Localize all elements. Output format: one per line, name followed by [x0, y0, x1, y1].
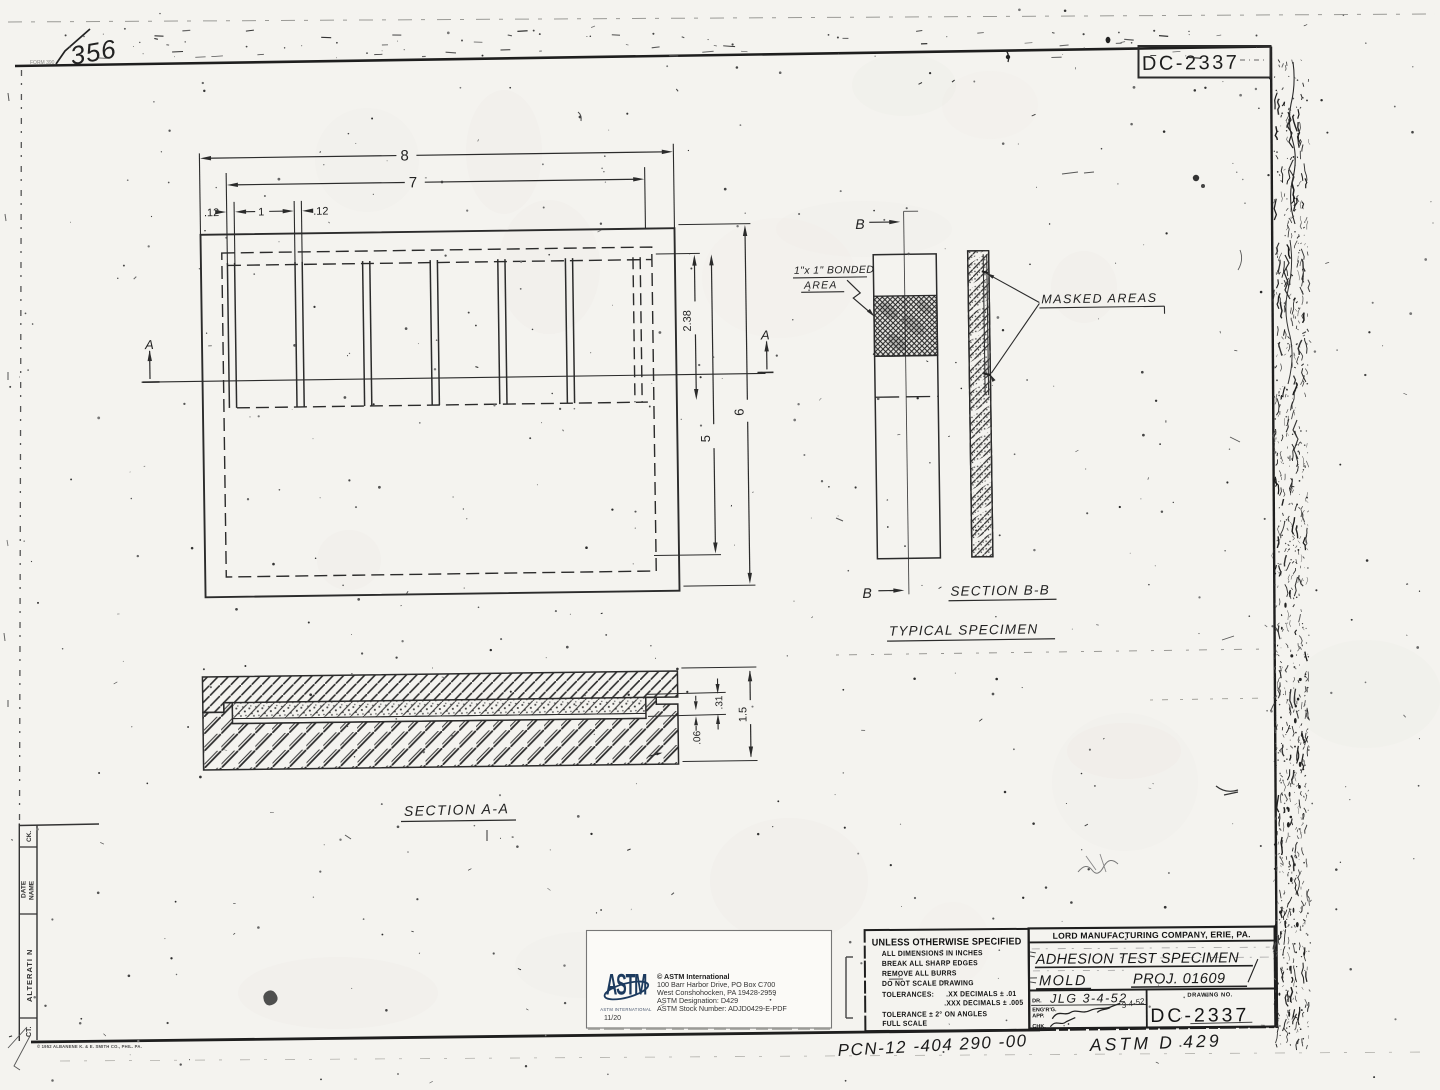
svg-text:1"x 1" BONDED: 1"x 1" BONDED — [794, 264, 875, 277]
svg-text:DRAWING NO.: DRAWING NO. — [1187, 992, 1232, 998]
svg-text:SECTION A-A: SECTION A-A — [404, 800, 510, 819]
svg-text:8: 8 — [400, 147, 409, 164]
svg-text:.XXX DECIMALS ± .005: .XXX DECIMALS ± .005 — [944, 999, 1023, 1008]
svg-text:ASTM INTERNATIONAL: ASTM INTERNATIONAL — [600, 1007, 652, 1012]
svg-text:NAME: NAME — [29, 880, 36, 900]
svg-text:ASTM Stock Number: ADJD0429-E-: ASTM Stock Number: ADJD0429-E-PDF — [657, 1004, 787, 1013]
svg-text:JLG 3-4-52: JLG 3-4-52 — [1049, 991, 1128, 1006]
svg-text:.XX DECIMALS ± .01: .XX DECIMALS ± .01 — [946, 990, 1016, 999]
svg-text:REMOVE ALL BURRS: REMOVE ALL BURRS — [882, 969, 957, 978]
svg-text:APP.: APP. — [1032, 1013, 1045, 1019]
svg-text:11/20: 11/20 — [604, 1015, 621, 1022]
svg-text:FORM 390: FORM 390 — [30, 60, 55, 66]
svg-text:ALTERATI N: ALTERATI N — [25, 949, 34, 1002]
svg-text:SECTION B-B: SECTION B-B — [950, 582, 1050, 598]
svg-text:LORD MANUFACTURING COMPANY, ER: LORD MANUFACTURING COMPANY, ERIE, PA. — [1053, 929, 1251, 941]
svg-text:MOLD: MOLD — [1039, 973, 1087, 989]
svg-text:DC-2337: DC-2337 — [1142, 52, 1240, 75]
svg-text:BREAK ALL SHARP EDGES: BREAK ALL SHARP EDGES — [882, 959, 978, 968]
svg-text:TOLERANCE ± 2° ON ANGLES: TOLERANCE ± 2° ON ANGLES — [882, 1010, 987, 1019]
svg-text:7: 7 — [409, 174, 418, 191]
svg-text:FULL SCALE: FULL SCALE — [882, 1019, 927, 1028]
svg-text:1: 1 — [258, 206, 264, 218]
svg-text:CHK.: CHK. — [1032, 1024, 1046, 1030]
svg-text:.06: .06 — [692, 730, 703, 744]
svg-text:6: 6 — [731, 408, 746, 415]
svg-text:A: A — [760, 327, 770, 342]
svg-text:UNLESS OTHERWISE SPECIFIED: UNLESS OTHERWISE SPECIFIED — [872, 936, 1022, 949]
svg-text:CT.: CT. — [26, 1026, 33, 1037]
svg-text:A: A — [144, 337, 154, 352]
svg-text:PROJ. 01609: PROJ. 01609 — [1133, 971, 1226, 988]
svg-text:DR.: DR. — [1032, 998, 1042, 1004]
svg-text:.31: .31 — [714, 695, 725, 709]
svg-text:.12: .12 — [313, 206, 328, 218]
svg-text:DATE: DATE — [21, 880, 28, 898]
svg-text:CK.: CK. — [26, 831, 33, 842]
svg-text:B: B — [862, 585, 872, 601]
svg-text:DO NOT SCALE DRAWING: DO NOT SCALE DRAWING — [882, 979, 974, 988]
svg-text:1.5: 1.5 — [737, 707, 749, 722]
svg-text:MASKED AREAS: MASKED AREAS — [1041, 291, 1157, 307]
svg-text:TYPICAL SPECIMEN: TYPICAL SPECIMEN — [889, 622, 1039, 639]
svg-text:5: 5 — [698, 435, 713, 442]
svg-text:ALL DIMENSIONS IN INCHES: ALL DIMENSIONS IN INCHES — [882, 949, 983, 958]
svg-text:2.38: 2.38 — [682, 310, 694, 332]
svg-text:TOLERANCES:: TOLERANCES: — [882, 990, 934, 999]
svg-text:B: B — [855, 216, 865, 232]
svg-text:© 1952 ALBANENE K. & E. SM: © 1952 ALBANENE K. & E. SMITH CO., PHIL.… — [37, 1044, 142, 1049]
